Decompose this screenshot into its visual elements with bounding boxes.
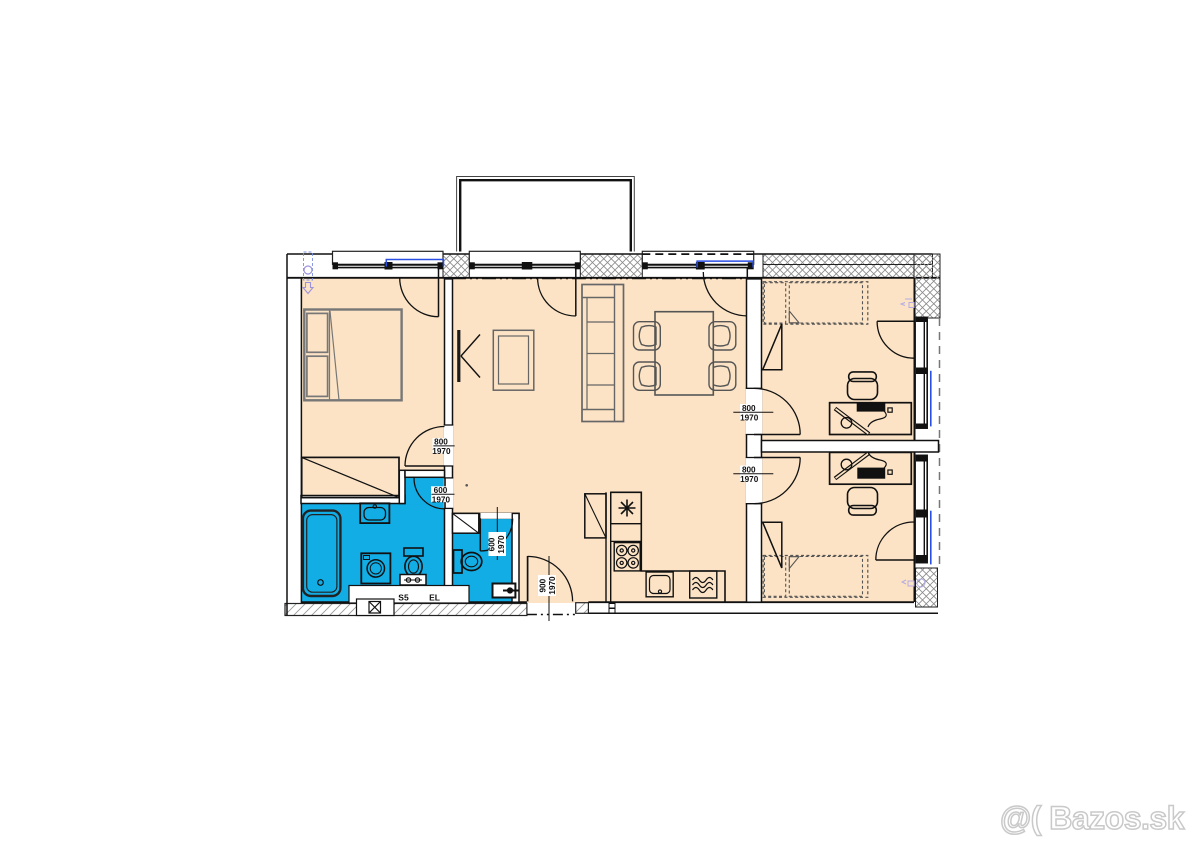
- svg-text:800: 800: [742, 465, 756, 474]
- svg-text:S5: S5: [398, 592, 409, 602]
- svg-text:1970: 1970: [740, 475, 759, 484]
- svg-text:1970: 1970: [432, 447, 451, 456]
- svg-text:800: 800: [434, 438, 448, 447]
- svg-text:@( Bazos.sk: @( Bazos.sk: [1000, 800, 1185, 836]
- svg-text:1970: 1970: [432, 495, 451, 504]
- svg-text:800: 800: [742, 404, 756, 413]
- svg-text:600: 600: [434, 486, 448, 495]
- svg-text:EL: EL: [429, 592, 440, 602]
- svg-text:1970: 1970: [548, 576, 557, 595]
- svg-text:900: 900: [539, 578, 548, 592]
- svg-text:600: 600: [488, 537, 497, 551]
- svg-text:1970: 1970: [740, 413, 759, 422]
- svg-text:1970: 1970: [497, 535, 506, 554]
